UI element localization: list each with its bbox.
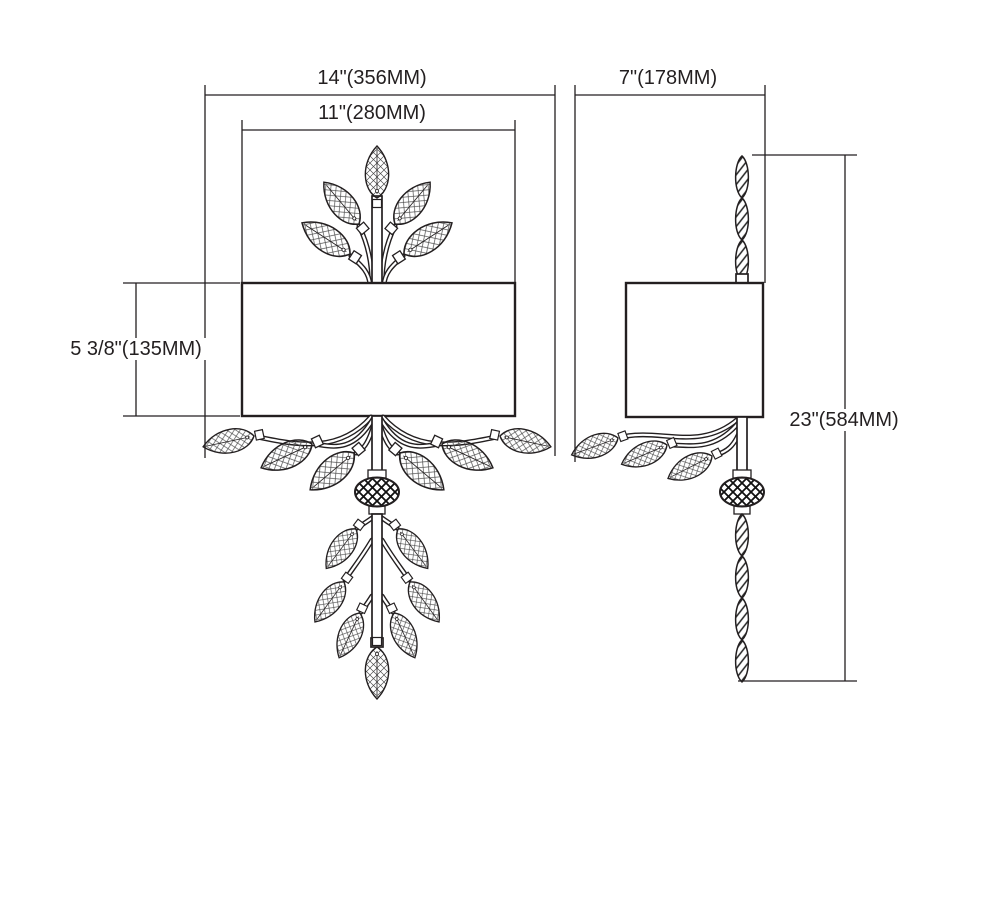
top-leaf-fan (295, 146, 459, 286)
sconce-dimension-diagram: 14"(356MM) 11"(280MM) 5 3/8"(135MM) 7"(1… (0, 0, 1000, 904)
dimension-label-depth: 7"(178MM) (619, 67, 717, 89)
bottom-leaf-cascade (306, 514, 448, 699)
side-leaf-row (568, 417, 747, 488)
side-view (568, 156, 764, 682)
twisted-rod-top (736, 156, 749, 284)
crystal-bead-front (355, 470, 399, 514)
crystal-bead-side (720, 470, 764, 514)
dimension-label-overall-height: 23"(584MM) (785, 409, 902, 431)
dimension-label-shade-height: 5 3/8"(135MM) (66, 338, 206, 360)
dimension-label-overall-width: 14"(356MM) (317, 67, 426, 89)
shade-front (242, 283, 515, 416)
front-view (201, 146, 554, 699)
shade-side (626, 283, 763, 417)
dimension-label-shade-width: 11"(280MM) (318, 102, 426, 124)
twisted-rod-bottom (736, 514, 749, 682)
line-drawing (0, 0, 1000, 904)
